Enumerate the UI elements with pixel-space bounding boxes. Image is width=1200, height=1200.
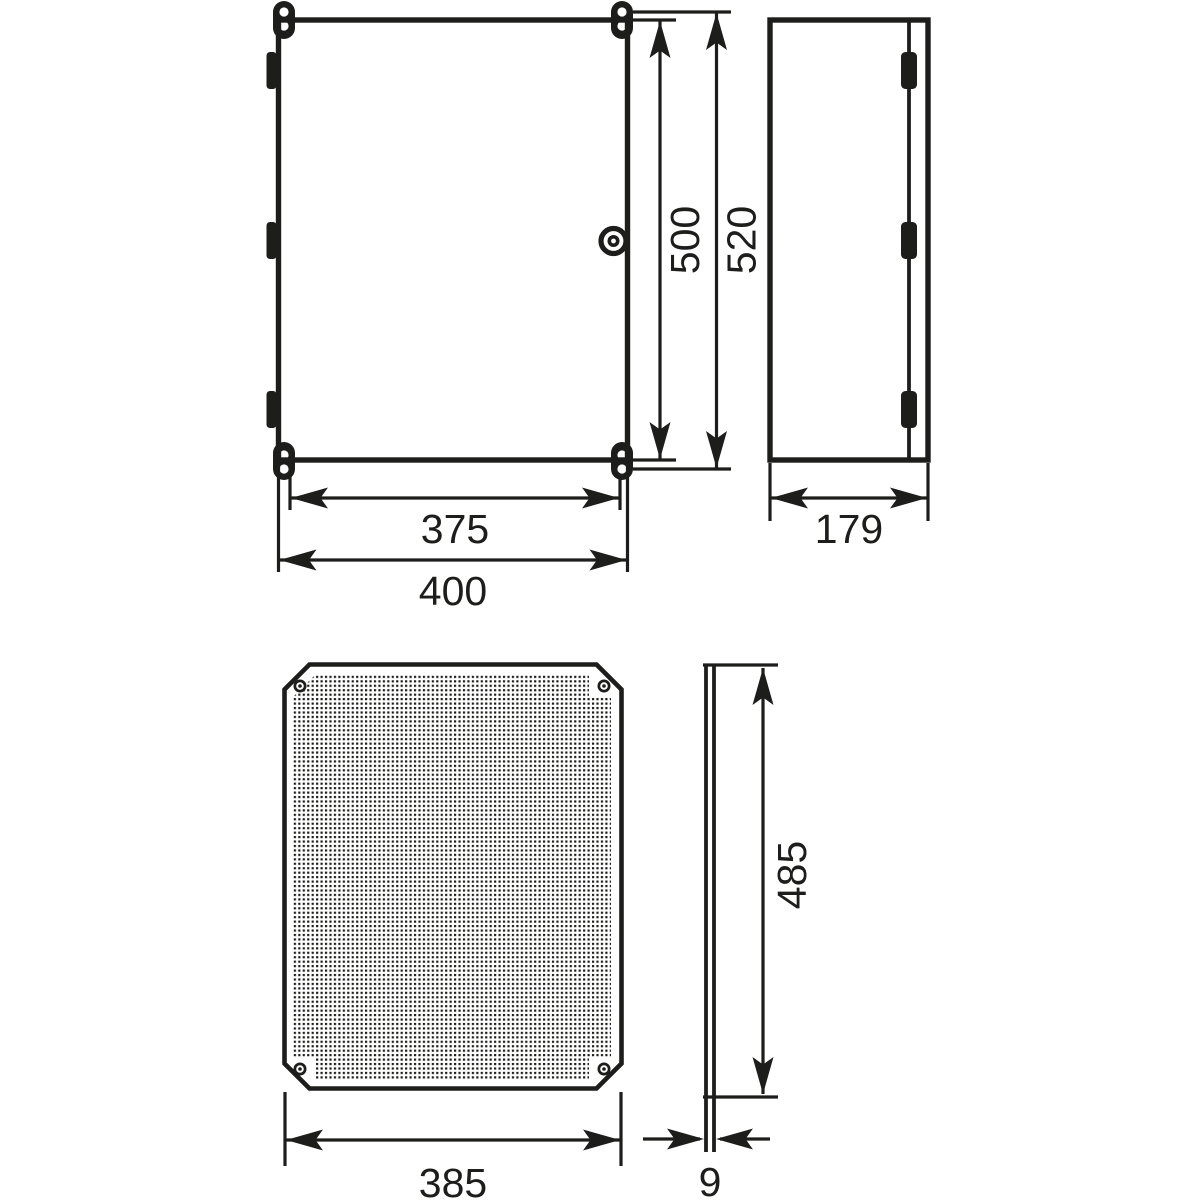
hinge-bottom xyxy=(901,391,917,428)
dimension-label-plate-width: 385 xyxy=(419,1160,487,1200)
enclosure-dimension-drawing: 500 520 375 400 179 xyxy=(0,0,1200,1200)
plate-screw-top-right xyxy=(598,680,611,693)
enclosure-body-outline xyxy=(279,20,628,460)
dimension-label-front-width-inner: 375 xyxy=(421,506,489,552)
hinge-bottom xyxy=(267,391,277,428)
lug-hole xyxy=(617,7,626,16)
perforation-area xyxy=(293,675,611,1080)
plate-dimensions: 385 xyxy=(285,1092,621,1200)
hinge-middle xyxy=(267,222,277,259)
lug-hole xyxy=(279,7,288,16)
plate-screw-bottom-right xyxy=(598,1063,611,1076)
dimension-label-plate-thickness: 9 xyxy=(699,1159,722,1200)
plate-screw-bottom-left xyxy=(294,1063,307,1076)
front-view-dimensions: 500 520 375 400 xyxy=(279,12,765,614)
plate-edge-dimensions: 485 9 xyxy=(643,668,815,1200)
side-view xyxy=(770,20,928,460)
dimension-label-front-width-outer: 400 xyxy=(419,568,487,614)
hinge-top xyxy=(901,52,917,89)
lug-hole xyxy=(279,464,288,473)
front-view xyxy=(267,1,634,480)
dimension-label-front-height-inner: 500 xyxy=(662,206,708,274)
hinge-middle xyxy=(901,222,917,259)
mounting-plate-view xyxy=(285,665,622,1089)
door-lock xyxy=(601,229,626,254)
side-view-dimensions: 179 xyxy=(770,463,928,552)
plate-screw-top-left xyxy=(294,680,307,693)
hinge-top xyxy=(267,52,277,89)
dimension-label-plate-height: 485 xyxy=(769,841,815,909)
lug-hole xyxy=(617,464,626,473)
dimension-label-side-depth: 179 xyxy=(815,506,883,552)
technical-drawing-canvas: 500 520 375 400 179 xyxy=(0,0,1200,1200)
dimension-label-front-height-outer: 520 xyxy=(719,206,765,274)
